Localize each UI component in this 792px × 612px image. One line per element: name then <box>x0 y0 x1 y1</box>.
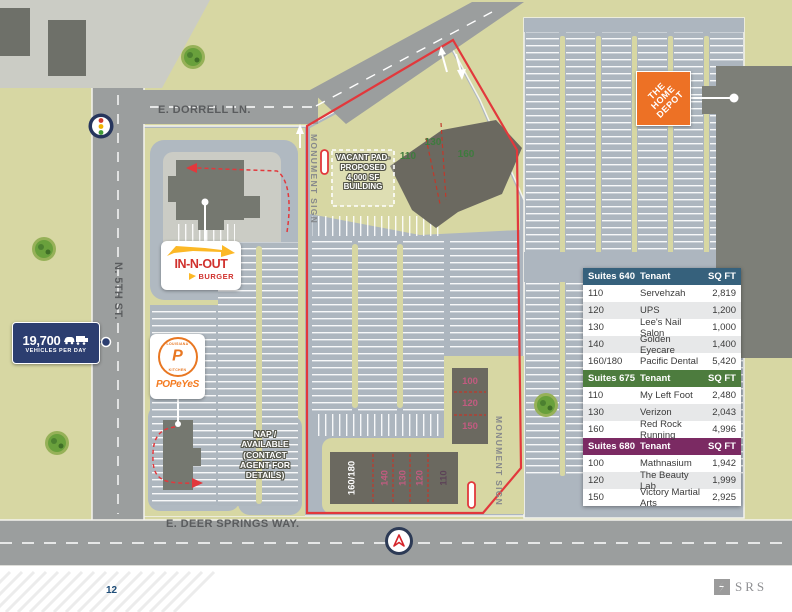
cell-sqft: 1,942 <box>700 458 736 469</box>
table-row: 140Golden Eyecare1,400 <box>583 336 741 353</box>
in-n-out-logo: IN-N-OUT BURGER <box>161 241 241 290</box>
monument-sign-label-south: MONUMENT SIGN <box>494 416 504 506</box>
cell-suite: 120 <box>588 305 640 316</box>
popeyes-roundel-icon: LOUISIANA P KITCHEN <box>158 337 198 377</box>
cell-sqft: 1,200 <box>700 305 736 316</box>
cell-sqft: 2,819 <box>700 288 736 299</box>
in-n-out-wordmark: IN-N-OUT <box>174 258 227 271</box>
vehicles-icon <box>63 334 89 346</box>
header-tenant: Tenant <box>640 441 700 452</box>
south-suite-130: 130 <box>398 470 409 486</box>
table-header: Suites 680 Tenant SQ FT <box>583 438 741 455</box>
popeyes-ring-top-label: LOUISIANA <box>160 342 196 346</box>
traffic-count-value: 19,700 <box>23 333 61 348</box>
cell-sqft: 1,999 <box>700 475 736 486</box>
home-depot-wordmark: THE HOME DEPOT <box>642 77 686 121</box>
east-suite-150: 150 <box>457 421 483 432</box>
street-label-5th: N. 5TH ST. <box>112 262 124 320</box>
cell-sqft: 2,480 <box>700 390 736 401</box>
monument-sign-marker-north <box>321 150 328 174</box>
cell-tenant: Mathnasium <box>640 458 700 469</box>
cell-tenant: Golden Eyecare <box>640 334 700 356</box>
cell-sqft: 2,043 <box>700 407 736 418</box>
in-n-out-burger-label: BURGER <box>198 272 234 281</box>
cell-tenant: Pacific Dental <box>640 356 700 367</box>
south-suite-110: 110 <box>439 470 450 485</box>
table-row: 160/180Pacific Dental5,420 <box>583 353 741 370</box>
access-arrow-icon <box>391 533 407 549</box>
cell-suite: 110 <box>588 390 640 401</box>
south-suite-140: 140 <box>380 470 391 486</box>
cell-suite: 130 <box>588 407 640 418</box>
popeyes-wordmark: POPeYeS <box>156 379 199 390</box>
header-tenant: Tenant <box>640 373 700 384</box>
header-tenant: Tenant <box>640 271 700 282</box>
vacant-pad-label: VACANT PAD- PROPOSED 4,000 SF BUILDING <box>332 153 394 192</box>
popeyes-p-monogram: P <box>172 347 183 365</box>
header-sqft: SQ FT <box>700 441 736 452</box>
cell-tenant: Victory Martial Arts <box>640 487 700 509</box>
nap-available-label: NAP / AVAILABLE (CONTACT AGENT FOR DETAI… <box>234 429 296 481</box>
traffic-count-unit: VEHICLES PER DAY <box>26 348 87 354</box>
pad-suite-110: 110 <box>395 151 421 162</box>
in-n-out-arrow-icon <box>165 243 237 258</box>
cell-suite: 160 <box>588 424 640 435</box>
table-header: Suites 640 Tenant SQ FT <box>583 268 741 285</box>
pad-suite-130: 130 <box>420 137 446 148</box>
cell-tenant: Servehzah <box>640 288 700 299</box>
table-suites-675: Suites 675 Tenant SQ FT 110My Left Foot2… <box>583 370 741 438</box>
table-row: 150Victory Martial Arts2,925 <box>583 489 741 506</box>
pad-suite-160: 160 <box>453 149 479 160</box>
footer-band <box>0 566 792 612</box>
header-sqft: SQ FT <box>700 271 736 282</box>
cell-tenant: My Left Foot <box>640 390 700 401</box>
table-row: 110My Left Foot2,480 <box>583 387 741 404</box>
cell-sqft: 2,925 <box>700 492 736 503</box>
cell-sqft: 5,420 <box>700 356 736 367</box>
tenant-tables: Suites 640 Tenant SQ FT 110Servehzah2,81… <box>583 268 741 506</box>
popeyes-logo: LOUISIANA P KITCHEN POPeYeS <box>150 334 205 399</box>
south-suite-160-180: 160/180 <box>347 461 358 495</box>
site-plan-page: E. DORRELL LN. N. 5TH ST. E. DEER SPRING… <box>0 0 792 612</box>
street-label-dorrell: E. DORRELL LN. <box>158 104 251 116</box>
cell-tenant: UPS <box>640 305 700 316</box>
cell-sqft: 4,996 <box>700 424 736 435</box>
srs-mark-icon <box>714 579 730 595</box>
cell-tenant: Red Rock Running <box>640 419 700 441</box>
cell-suite: 110 <box>588 288 640 299</box>
srs-wordmark: SRS <box>735 579 767 595</box>
cell-suite: 120 <box>588 475 640 486</box>
cell-suite: 160/180 <box>588 356 640 367</box>
traffic-signal-icon <box>89 114 114 139</box>
table-row: 160Red Rock Running4,996 <box>583 421 741 438</box>
south-suite-120: 120 <box>415 470 426 486</box>
header-suites: Suites 675 <box>588 373 640 384</box>
traffic-count-badge: 19,700 VEHICLES PER DAY <box>12 322 100 364</box>
home-depot-logo: THE HOME DEPOT <box>636 71 691 126</box>
cell-sqft: 1,000 <box>700 322 736 333</box>
table-header: Suites 675 Tenant SQ FT <box>583 370 741 387</box>
cell-suite: 150 <box>588 492 640 503</box>
monument-sign-label-north: MONUMENT SIGN <box>309 134 319 224</box>
in-n-out-arrow-tail-icon <box>189 273 196 280</box>
east-suite-100: 100 <box>457 376 483 387</box>
east-suite-120: 120 <box>457 398 483 409</box>
header-suites: Suites 680 <box>588 441 640 452</box>
table-suites-680: Suites 680 Tenant SQ FT 100Mathnasium1,9… <box>583 438 741 506</box>
header-suites: Suites 640 <box>588 271 640 282</box>
cell-sqft: 1,400 <box>700 339 736 350</box>
page-number: 12 <box>106 585 117 596</box>
table-suites-640: Suites 640 Tenant SQ FT 110Servehzah2,81… <box>583 268 741 370</box>
cell-suite: 130 <box>588 322 640 333</box>
srs-logo: SRS <box>714 579 767 595</box>
monument-sign-marker-south <box>468 482 475 508</box>
cell-tenant: Verizon <box>640 407 700 418</box>
table-row: 110Servehzah2,819 <box>583 285 741 302</box>
header-sqft: SQ FT <box>700 373 736 384</box>
access-point-marker <box>385 527 413 555</box>
cell-suite: 140 <box>588 339 640 350</box>
popeyes-ring-bottom-label: KITCHEN <box>160 368 196 372</box>
cell-suite: 100 <box>588 458 640 469</box>
street-label-deer-springs: E. DEER SPRINGS WAY. <box>166 518 300 530</box>
